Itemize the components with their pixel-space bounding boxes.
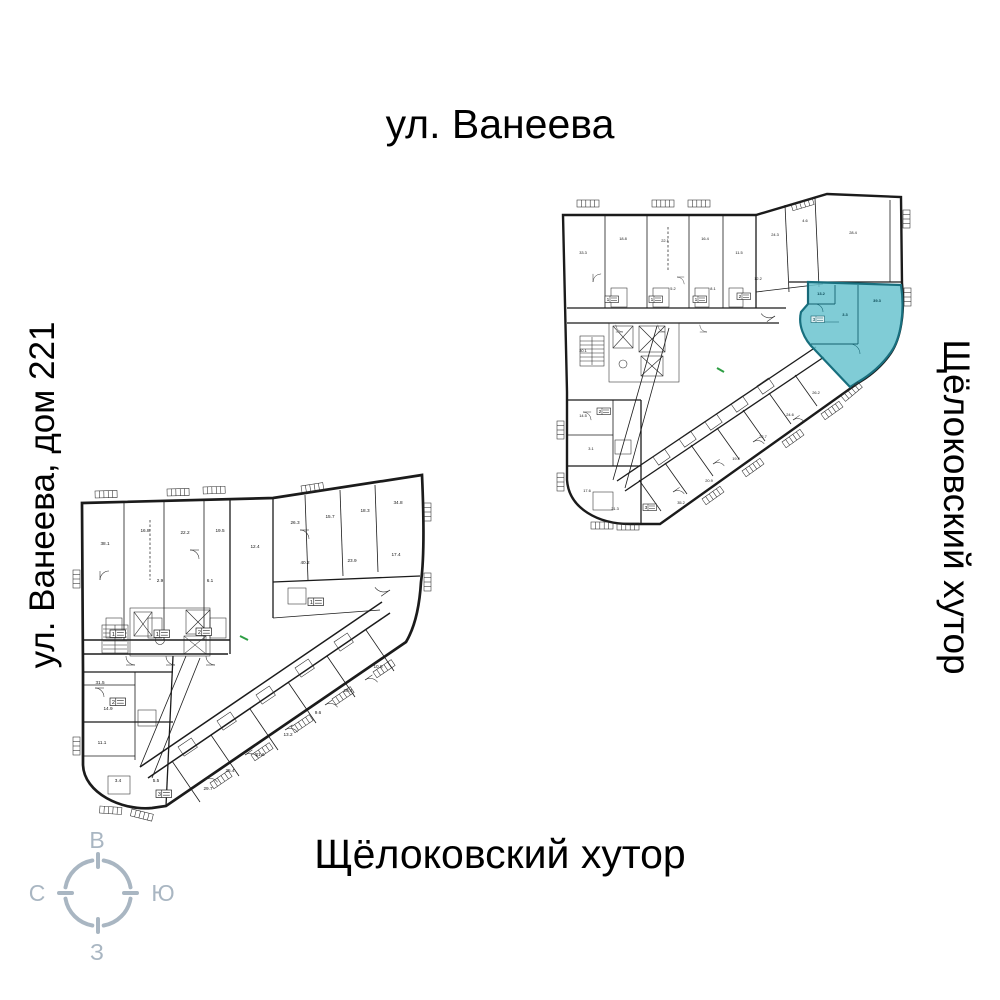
svg-text:3: 3: [645, 505, 648, 511]
svg-text:28.4: 28.4: [849, 230, 857, 235]
compass-letter-right: Ю: [151, 880, 174, 906]
svg-text:3: 3: [813, 317, 816, 323]
svg-text:19.8: 19.8: [732, 456, 740, 461]
svg-text:2: 2: [198, 630, 201, 636]
svg-text:16.4: 16.4: [701, 236, 709, 241]
svg-text:8.1: 8.1: [710, 286, 715, 291]
svg-text:23.9: 23.9: [347, 558, 357, 563]
svg-text:20.9: 20.9: [705, 478, 713, 483]
svg-text:1: 1: [112, 632, 115, 638]
apartment-stamp: 3: [156, 790, 172, 798]
door-arcs: [95, 530, 390, 787]
compass-letter-bottom: З: [90, 939, 104, 965]
svg-text:15.7: 15.7: [325, 514, 335, 519]
svg-text:16.8: 16.8: [140, 528, 150, 533]
svg-text:20.1: 20.1: [343, 688, 353, 693]
svg-text:2: 2: [739, 294, 742, 300]
svg-text:3.3: 3.3: [842, 312, 848, 317]
compass-rose: В Ю З С: [20, 820, 190, 970]
svg-text:2.9: 2.9: [157, 578, 164, 583]
entrance-marker: [717, 368, 724, 372]
svg-text:24.3: 24.3: [771, 232, 779, 237]
svg-text:30.1: 30.1: [579, 348, 587, 353]
svg-text:13.2: 13.2: [817, 291, 826, 296]
svg-text:18.8: 18.8: [619, 236, 627, 241]
svg-text:11.1: 11.1: [98, 740, 107, 745]
svg-text:2: 2: [599, 409, 602, 415]
svg-text:24.6: 24.6: [786, 412, 794, 417]
svg-text:1: 1: [156, 632, 159, 638]
apartment-stamp: 2: [110, 698, 126, 706]
svg-text:29.7: 29.7: [203, 786, 213, 791]
svg-text:40.2: 40.2: [300, 560, 310, 565]
balcony-combs: [73, 483, 431, 822]
svg-text:12.2: 12.2: [754, 276, 762, 281]
compass-letter-top: В: [89, 827, 104, 853]
svg-text:18.3: 18.3: [360, 508, 370, 513]
svg-text:26.2: 26.2: [812, 390, 820, 395]
svg-text:17.6: 17.6: [583, 488, 591, 493]
svg-text:5.5: 5.5: [153, 778, 160, 783]
floor-plan-locator: 1 1 1 2 2 3 33.3 18.8 22.1 16.4 11.5 24.…: [553, 192, 921, 528]
apartment-stamp: 1: [308, 598, 324, 606]
svg-text:14.9: 14.9: [103, 706, 113, 711]
entrance-marker: [240, 636, 248, 640]
apartment-stamp: 2: [737, 293, 751, 300]
svg-text:38.1: 38.1: [100, 541, 110, 546]
svg-text:22.7: 22.7: [759, 434, 767, 439]
highlight-apartment-stamp: 3: [811, 316, 825, 323]
svg-text:22.1: 22.1: [661, 238, 669, 243]
svg-text:4.6: 4.6: [802, 218, 807, 223]
svg-text:31.5: 31.5: [95, 680, 105, 685]
svg-text:10.8: 10.8: [373, 664, 383, 669]
svg-text:34.8: 34.8: [393, 500, 403, 505]
apartment-stamp: 1: [693, 296, 707, 303]
svg-text:1: 1: [607, 297, 610, 303]
svg-text:35.2: 35.2: [677, 500, 685, 505]
svg-text:1: 1: [695, 297, 698, 303]
apartment-stamp: 1: [110, 630, 126, 638]
apartment-stamp: 2: [597, 408, 611, 415]
svg-text:3: 3: [158, 792, 161, 798]
street-label-top: ул. Ванеева: [0, 101, 1000, 148]
svg-text:1: 1: [310, 600, 313, 606]
svg-text:5.2: 5.2: [670, 286, 675, 291]
svg-text:33.3: 33.3: [579, 250, 587, 255]
svg-text:1: 1: [651, 297, 654, 303]
svg-text:25.4: 25.4: [225, 768, 235, 773]
wing-bathrooms: [653, 378, 774, 465]
svg-text:11.5: 11.5: [735, 250, 742, 255]
floorplan-locator-page: ул. Ванеева ул. Ванеева, дом 221 Щёлоков…: [0, 0, 1000, 1000]
apartment-stamp: 1: [154, 630, 170, 638]
apartment-stamp: 1: [649, 296, 663, 303]
compass-letter-left: С: [29, 880, 46, 906]
svg-text:12.4: 12.4: [250, 544, 260, 549]
svg-text:3.1: 3.1: [588, 446, 593, 451]
svg-text:19.5: 19.5: [215, 528, 225, 533]
floor-plan-main: 1 1 2 1 2 3 38.1 16.8 22.2 19.5 12.4 26.…: [60, 460, 434, 818]
svg-text:21.3: 21.3: [611, 506, 619, 511]
room-area-labels: 38.1 16.8 22.2 19.5 12.4 26.3 15.7 18.3 …: [95, 500, 403, 791]
svg-text:13.2: 13.2: [283, 732, 293, 737]
svg-text:17.4: 17.4: [391, 552, 401, 557]
svg-text:9.6: 9.6: [315, 710, 322, 715]
apartment-stamp: 3: [643, 504, 657, 511]
building-outline: [82, 475, 423, 808]
svg-text:22.2: 22.2: [180, 530, 190, 535]
svg-text:39.3: 39.3: [873, 298, 882, 303]
selected-apartment-highlight[interactable]: 3 39.3 13.2 3.3: [800, 282, 911, 401]
svg-text:26.3: 26.3: [290, 520, 300, 525]
svg-text:3.4: 3.4: [115, 778, 122, 783]
apartment-stamp: 2: [196, 628, 212, 636]
svg-text:14.5: 14.5: [579, 413, 587, 418]
room-area-labels: 33.3 18.8 22.1 16.4 11.5 24.3 4.6 28.4 3…: [579, 218, 857, 511]
street-label-right: Щёлоковский хутор: [935, 339, 977, 674]
svg-text:21.6: 21.6: [255, 752, 265, 757]
compass-circle: [59, 854, 137, 932]
street-label-left: ул. Ванеева, дом 221: [23, 322, 63, 669]
svg-text:6.1: 6.1: [207, 578, 214, 583]
apartment-stamp: 1: [605, 296, 619, 303]
